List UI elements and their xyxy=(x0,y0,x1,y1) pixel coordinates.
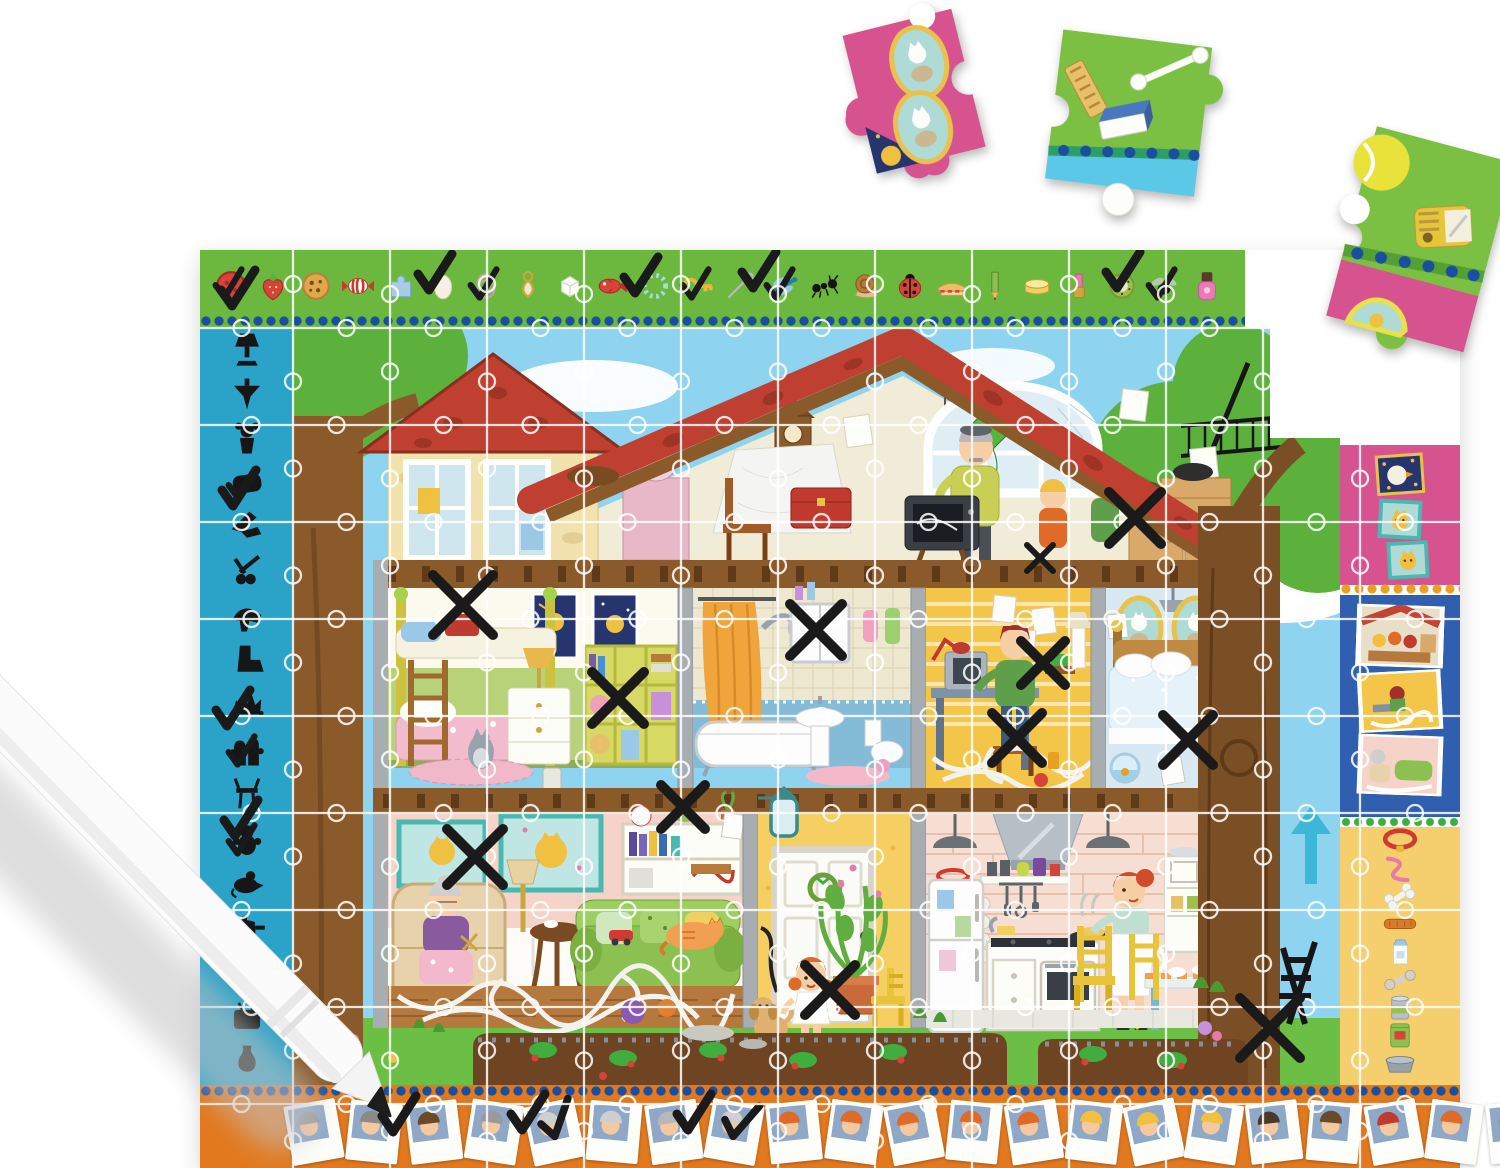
hallway xyxy=(749,786,911,1044)
object-candy xyxy=(341,264,375,308)
family-polaroid xyxy=(345,1099,403,1164)
pet-item-milk xyxy=(1377,938,1423,966)
object-rings xyxy=(469,264,503,308)
silhouette-knife xyxy=(227,508,267,548)
object-button xyxy=(214,264,248,308)
silhouette-saucepan xyxy=(227,909,267,949)
pet-item-bag xyxy=(1377,1021,1423,1049)
family-polaroid xyxy=(585,1100,642,1164)
stepping-stone xyxy=(739,1039,767,1049)
top-object-row xyxy=(214,256,1224,316)
silhouette-doll xyxy=(227,419,267,459)
kitchen xyxy=(926,814,1243,1047)
object-sugar xyxy=(553,264,587,308)
plate xyxy=(1169,847,1201,857)
snapshot-living-room xyxy=(1356,734,1444,797)
window-photo xyxy=(418,488,440,514)
rug xyxy=(409,759,533,785)
apple xyxy=(1034,773,1048,787)
photo-card xyxy=(721,813,744,840)
family-polaroid xyxy=(464,1098,525,1165)
border-bottom-photos xyxy=(200,1085,1460,1168)
silhouette-chair xyxy=(227,775,267,815)
bathroom xyxy=(693,582,911,786)
object-earring xyxy=(511,264,545,308)
kitchen-floor xyxy=(926,1010,1243,1028)
silhouette-pillow xyxy=(227,464,267,504)
object-ladybug xyxy=(893,264,927,308)
living-room xyxy=(388,792,746,1037)
family-polaroid xyxy=(1065,1099,1124,1165)
red-bag xyxy=(445,614,479,636)
yarn-ball xyxy=(621,1000,645,1024)
pet-item-column xyxy=(1340,827,1460,1077)
family-polaroid xyxy=(1245,1099,1304,1165)
kitten-picture xyxy=(1372,498,1428,543)
wall xyxy=(678,588,693,790)
study xyxy=(926,588,1091,790)
kid-drawing xyxy=(937,890,954,911)
kids-bedroom xyxy=(388,587,678,790)
yarn-ball xyxy=(658,999,676,1017)
game-console xyxy=(543,768,561,790)
house-scene xyxy=(293,328,1340,1085)
fishbowl xyxy=(1111,754,1139,782)
fridge xyxy=(929,870,983,1032)
family-polaroid xyxy=(522,1097,585,1167)
family-polaroid xyxy=(1305,1100,1362,1164)
object-key xyxy=(681,264,715,308)
pet-item-can xyxy=(1377,994,1423,1022)
family-polaroid xyxy=(644,1099,704,1166)
silhouette-boot xyxy=(227,642,267,682)
black-pot xyxy=(1173,463,1213,481)
object-fly xyxy=(1147,264,1181,308)
kitten-picture xyxy=(1380,539,1436,582)
border-left-silhouettes xyxy=(200,328,293,1085)
snapshot-study xyxy=(1356,669,1443,733)
silhouette-lamp xyxy=(227,330,267,370)
pet-item-treat xyxy=(1377,910,1423,938)
object-pencil xyxy=(978,264,1012,308)
object-egg xyxy=(426,264,460,308)
cube-shelf xyxy=(585,646,677,764)
silhouette-spinning-top xyxy=(227,375,267,415)
silhouette-mouse xyxy=(227,864,267,904)
pet-item-leash xyxy=(1377,855,1423,883)
family-polaroid xyxy=(405,1099,464,1165)
silhouette-hedgehog xyxy=(227,686,267,726)
object-kiwi xyxy=(1105,264,1139,308)
stepping-stone xyxy=(682,1025,734,1041)
object-ant xyxy=(808,264,842,308)
wall xyxy=(743,814,758,1028)
ladybug xyxy=(599,1072,607,1080)
wall xyxy=(911,588,926,790)
soda-can xyxy=(1048,752,1059,769)
dotted-divider xyxy=(200,1085,1460,1098)
outer-wall-left xyxy=(373,814,388,1028)
snapshot-attic xyxy=(1355,603,1445,668)
object-polish xyxy=(1190,264,1224,308)
border-right-strip xyxy=(1340,445,1460,1085)
family-polaroid xyxy=(1184,1098,1245,1165)
piggy-bank xyxy=(590,695,610,715)
object-strawberry xyxy=(256,264,290,308)
loose-piece-school-items[interactable] xyxy=(1017,7,1240,230)
pencil-sharpener xyxy=(1414,205,1472,248)
silhouette-vase xyxy=(227,1042,267,1082)
family-polaroid xyxy=(1363,1098,1425,1166)
object-sandwich xyxy=(935,264,969,308)
family-polaroid xyxy=(703,1098,765,1166)
object-butter xyxy=(1020,264,1054,308)
pet-item-collar xyxy=(1377,827,1423,855)
dotted-divider xyxy=(200,315,1245,328)
towel-roll xyxy=(590,734,610,754)
pet-item-bone xyxy=(1377,883,1423,911)
kid-drawing xyxy=(939,950,956,971)
family-polaroid xyxy=(1122,1097,1185,1167)
doll xyxy=(876,759,890,773)
family-polaroid xyxy=(1424,1099,1484,1166)
object-fish xyxy=(596,264,630,308)
family-polaroid xyxy=(824,1099,884,1166)
polaroid-row xyxy=(288,1102,1500,1162)
outer-wall-left xyxy=(373,560,388,790)
silhouette-high-heel xyxy=(227,597,267,637)
family-polaroid xyxy=(765,1099,823,1164)
family-polaroid xyxy=(883,1098,945,1167)
object-needle xyxy=(723,264,757,308)
object-snail xyxy=(850,264,884,308)
photo-card xyxy=(1159,756,1185,785)
family-polaroid xyxy=(1485,1099,1500,1164)
puzzle-board xyxy=(200,250,1460,1168)
floor-divider-2 xyxy=(373,788,1253,814)
kitten-paintings xyxy=(399,816,601,890)
red-chest xyxy=(791,488,851,528)
strip-pink-section xyxy=(1340,445,1460,585)
silhouette-teddy-bear xyxy=(227,820,267,860)
object-dragonfly xyxy=(765,264,799,308)
family-polaroid xyxy=(945,1099,1003,1164)
border-top-objects xyxy=(200,250,1245,328)
wall xyxy=(911,814,926,1028)
window-photo xyxy=(521,524,543,550)
silhouette-column xyxy=(200,330,293,1082)
object-lipstick xyxy=(1062,264,1096,308)
butter-dish xyxy=(997,926,1015,935)
silhouette-tv xyxy=(227,998,267,1038)
silhouette-gloves xyxy=(227,731,267,771)
wall xyxy=(1091,588,1106,790)
strip-blue-section xyxy=(1340,595,1460,817)
pet-item-chewbone xyxy=(1377,966,1423,994)
product-photo xyxy=(0,0,1500,1168)
pink-dresser xyxy=(623,478,689,560)
pet-item-bowl xyxy=(1377,1049,1423,1077)
object-cookie xyxy=(299,264,333,308)
object-puzzle xyxy=(384,264,418,308)
starry-duck-picture xyxy=(1366,449,1433,501)
family-polaroid xyxy=(283,1098,345,1166)
silhouette-scissors xyxy=(227,553,267,593)
family-polaroid xyxy=(1004,1098,1065,1165)
silhouette-car xyxy=(227,953,267,993)
loose-piece-cat-portraits[interactable] xyxy=(799,0,1034,232)
kid-drawing xyxy=(955,916,972,937)
object-bracelet xyxy=(638,264,672,308)
bird-nest xyxy=(567,466,619,486)
